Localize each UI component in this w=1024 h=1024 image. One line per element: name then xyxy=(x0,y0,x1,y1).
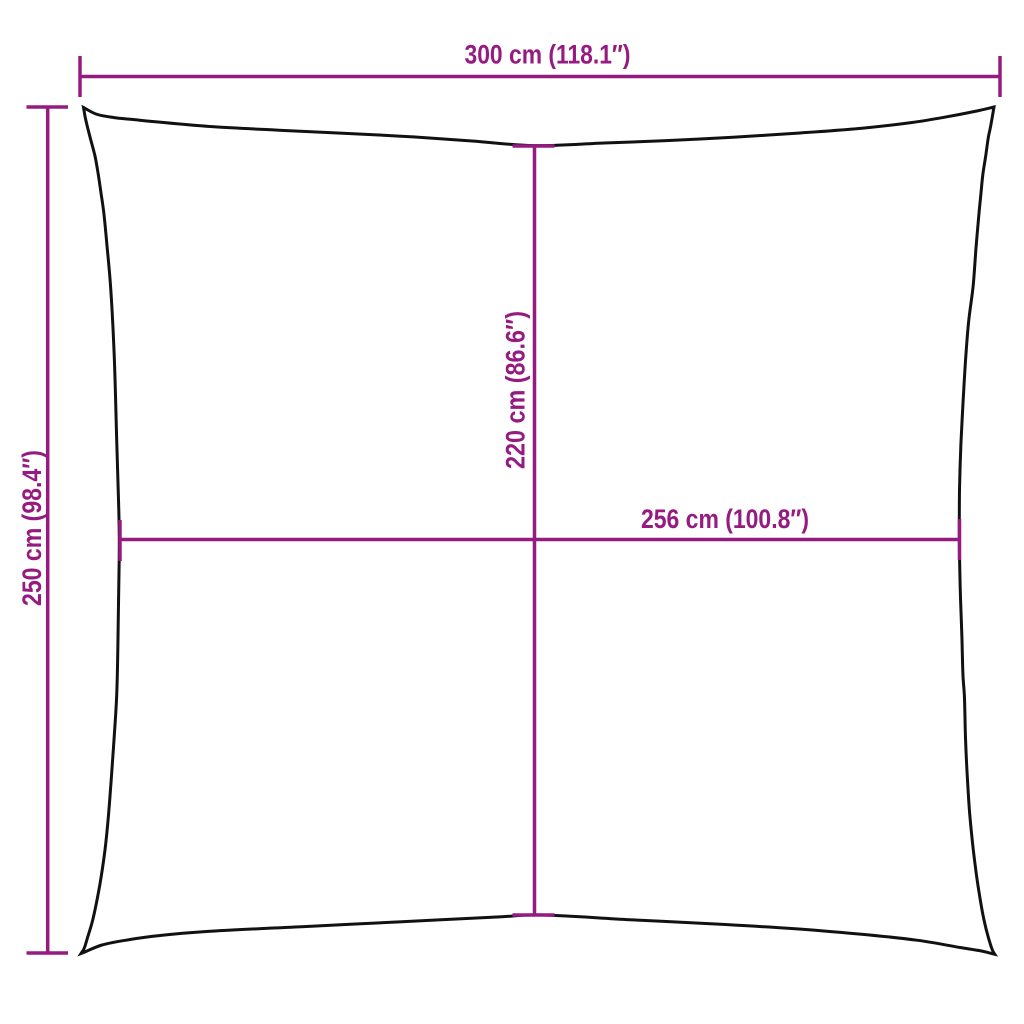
svg-text:300 cm (118.1″): 300 cm (118.1″) xyxy=(465,39,631,69)
svg-text:256 cm (100.8″): 256 cm (100.8″) xyxy=(641,504,809,534)
svg-text:220 cm (86.6″): 220 cm (86.6″) xyxy=(500,311,530,469)
svg-text:250 cm (98.4″): 250 cm (98.4″) xyxy=(17,450,47,606)
